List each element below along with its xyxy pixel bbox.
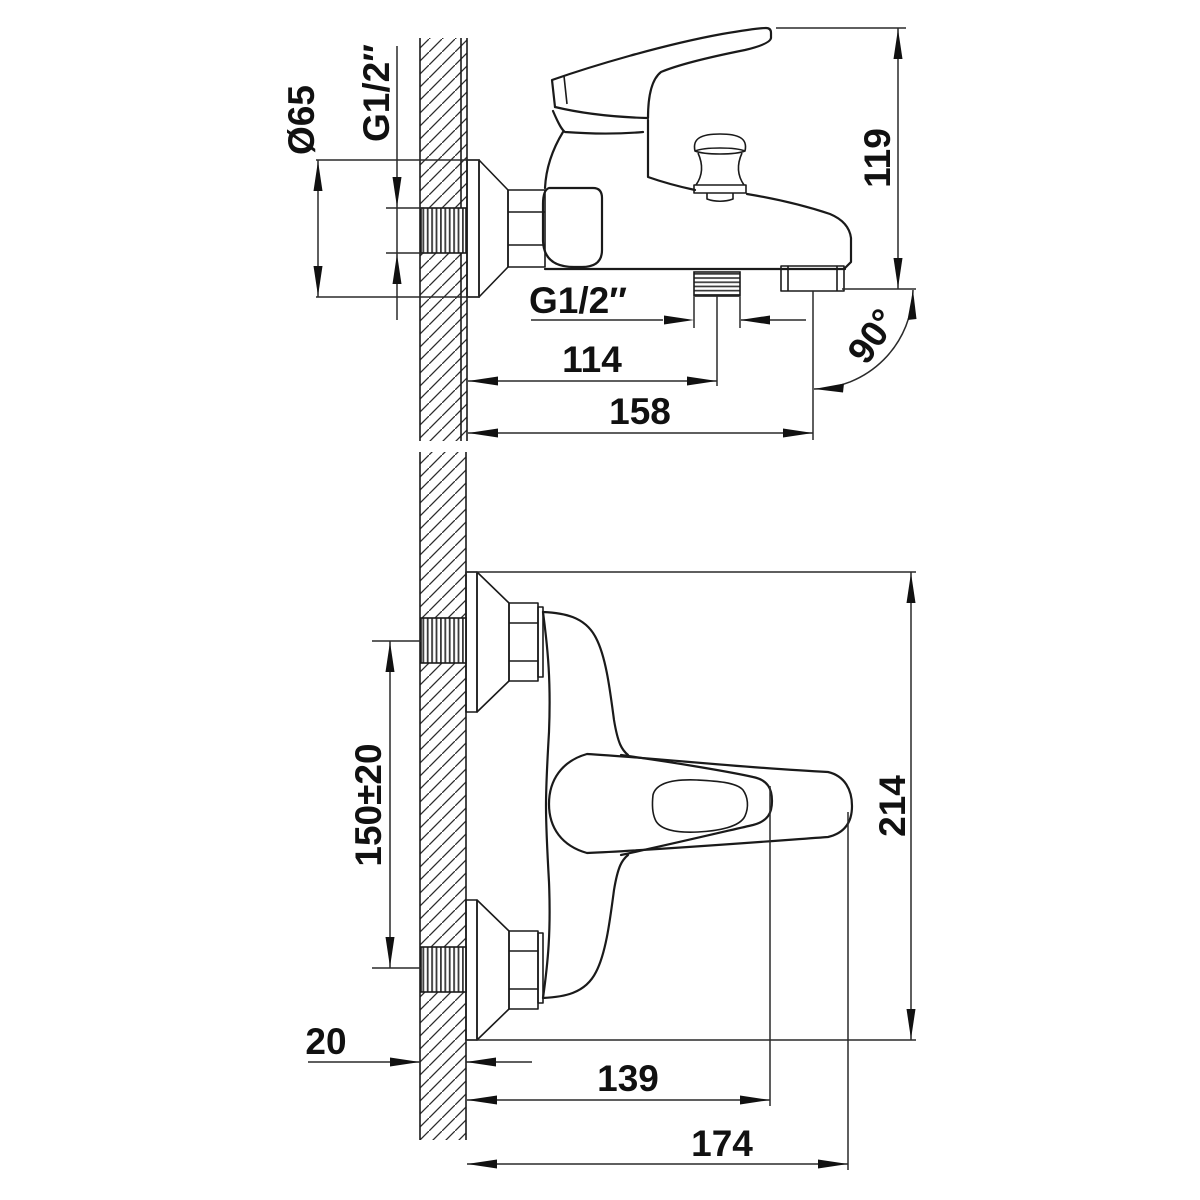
dim-label-body-height: 119 (857, 128, 898, 188)
wall-thread (421, 208, 466, 253)
dim-wall-thread: G1/2″ (356, 44, 424, 320)
dim-spout-reach: 158 (468, 291, 813, 440)
dim-label-spout-reach: 158 (609, 391, 671, 432)
dim-outlet-offset: 114 (468, 339, 717, 386)
dim-label-overall-height: 214 (872, 775, 913, 837)
shower-outlet-thread (694, 272, 740, 296)
dim-label-handle-projection: 139 (597, 1058, 659, 1099)
dim-handle-projection: 139 (467, 786, 770, 1106)
hex-nut-bottom (509, 931, 538, 1009)
dim-body-height: 119 (776, 28, 916, 289)
escutcheon-top (466, 572, 543, 712)
dim-outlet-thread: G1/2″ (529, 280, 806, 328)
dim-outlet-angle: 90° (814, 290, 917, 393)
inlet-thread-bottom (421, 947, 466, 992)
dim-label-outlet-angle: 90° (840, 302, 906, 371)
dim-label-escutcheon-diameter: Ø65 (281, 85, 322, 155)
cartridge-cover (543, 188, 602, 267)
hex-nut-top (509, 603, 538, 681)
lever-handle (552, 28, 771, 118)
escutcheon-bottom (466, 900, 543, 1040)
dim-inlet-spacing: 150±20 (348, 641, 421, 968)
dim-wall-thickness: 20 (305, 1021, 532, 1067)
faucet-dimension-drawing: Ø65 G1/2″ 119 G1/2″ (0, 0, 1200, 1200)
dim-label-wall-thickness: 20 (305, 1021, 346, 1062)
technical-drawing: Ø65 G1/2″ 119 G1/2″ (0, 0, 1200, 1200)
wall-section-plan (420, 452, 466, 1140)
faucet-body (543, 107, 851, 269)
dim-label-outlet-offset: 114 (562, 339, 622, 380)
lever-outline (621, 755, 772, 855)
dim-label-outlet-thread: G1/2″ (529, 280, 627, 321)
lever-inset (652, 780, 747, 832)
body-column (543, 612, 628, 998)
dim-label-inlet-spacing: 150±20 (348, 743, 389, 866)
dim-overall-projection: 174 (467, 812, 848, 1170)
diverter-knob (694, 134, 746, 201)
dim-label-overall-projection: 174 (691, 1123, 753, 1164)
escutcheon (467, 160, 545, 297)
side-view: Ø65 G1/2″ 119 G1/2″ (281, 28, 917, 441)
hex-nut (508, 190, 545, 267)
dim-label-wall-thread: G1/2″ (356, 44, 397, 142)
inlet-thread-top (421, 618, 466, 663)
plan-view: 150±20 214 20 139 (305, 452, 916, 1170)
